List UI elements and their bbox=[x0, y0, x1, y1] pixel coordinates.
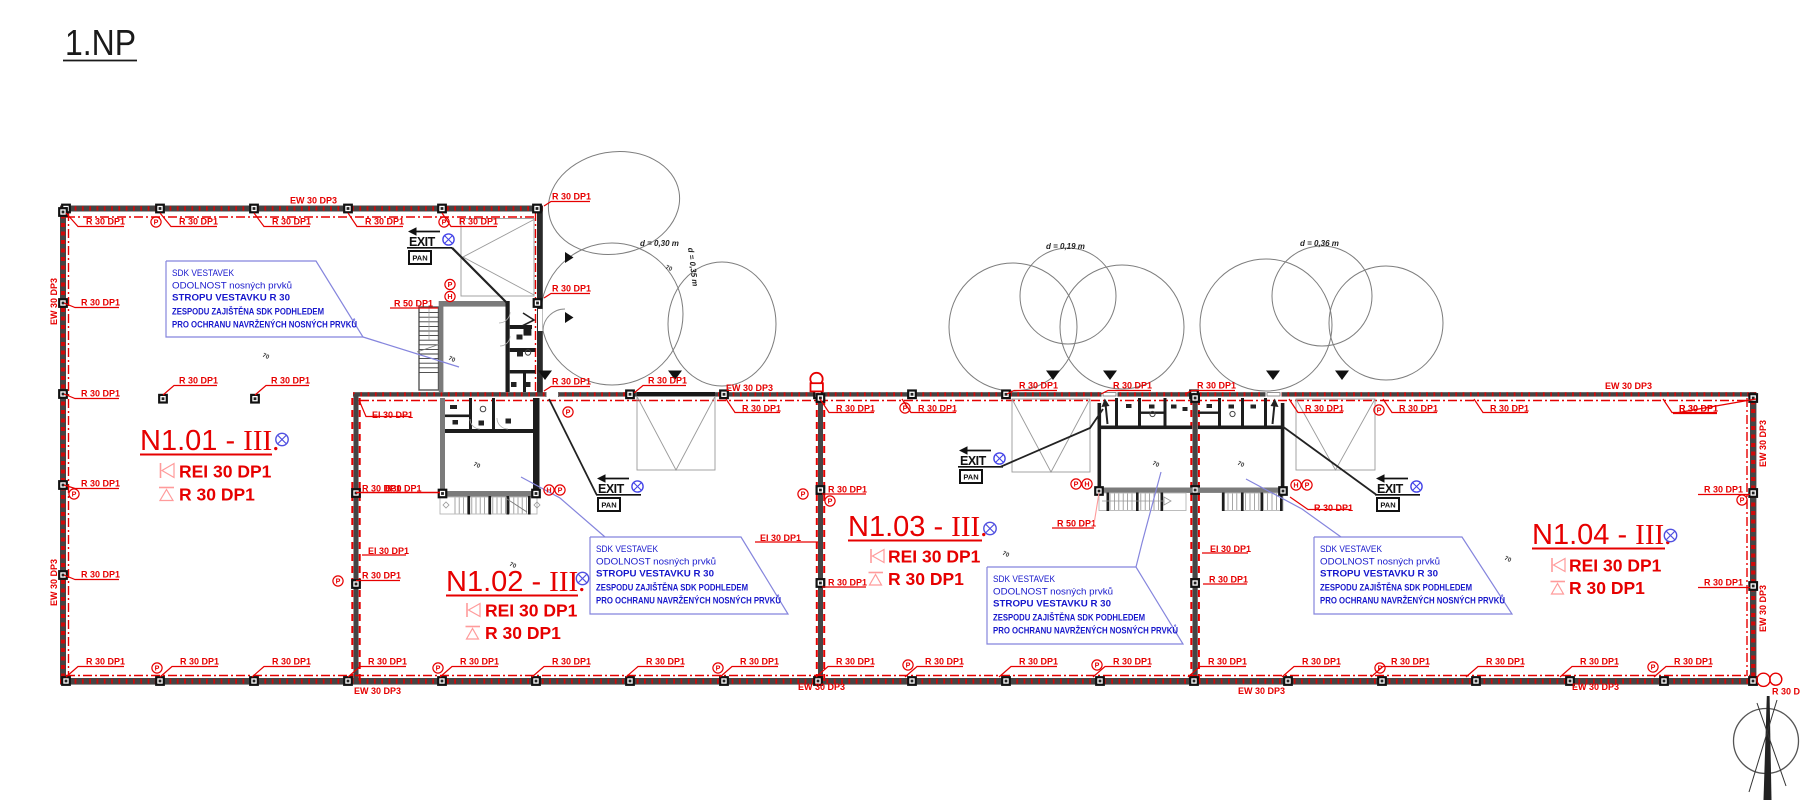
svg-text:1.NP: 1.NP bbox=[65, 22, 136, 63]
svg-text:R 30 DP1: R 30 DP1 bbox=[86, 217, 125, 227]
svg-text:R 30 DP1: R 30 DP1 bbox=[828, 578, 867, 588]
svg-text:REI 30 DP1: REI 30 DP1 bbox=[888, 547, 981, 567]
svg-text:N1.03 - III.: N1.03 - III. bbox=[848, 511, 987, 543]
svg-text:PRO OCHRANU NAVRŽENÝCH NOSNÝCH: PRO OCHRANU NAVRŽENÝCH NOSNÝCH PRVKŮ bbox=[1320, 595, 1505, 607]
svg-text:ZESPODU ZAJIŠTĚNA SDK PODHLEDE: ZESPODU ZAJIŠTĚNA SDK PODHLEDEM bbox=[993, 612, 1145, 624]
svg-text:EXIT: EXIT bbox=[598, 482, 625, 496]
svg-text:EW 30 DP3: EW 30 DP3 bbox=[1758, 420, 1768, 467]
svg-text:R 30 DP1: R 30 DP1 bbox=[1209, 575, 1248, 585]
svg-text:ODOLNOST nosných prvků: ODOLNOST nosných prvků bbox=[993, 587, 1113, 598]
svg-text:EI 30 DP1: EI 30 DP1 bbox=[372, 410, 413, 420]
svg-text:R 30 DP1: R 30 DP1 bbox=[86, 657, 125, 667]
svg-text:EW 30 DP3: EW 30 DP3 bbox=[290, 196, 337, 206]
svg-text:P: P bbox=[828, 497, 833, 506]
svg-text:EW 30 DP3: EW 30 DP3 bbox=[1572, 682, 1619, 692]
svg-text:REI 30 DP1: REI 30 DP1 bbox=[1569, 556, 1662, 576]
svg-text:STROPU VESTAVKU R 30: STROPU VESTAVKU R 30 bbox=[993, 599, 1111, 610]
svg-text:EXIT: EXIT bbox=[960, 454, 987, 468]
svg-text:P: P bbox=[906, 661, 911, 670]
svg-text:SDK VESTAVEK: SDK VESTAVEK bbox=[172, 268, 235, 279]
svg-text:EXIT: EXIT bbox=[409, 235, 436, 249]
svg-text:R 30 DP1: R 30 DP1 bbox=[1569, 578, 1645, 598]
svg-text:H: H bbox=[447, 292, 452, 301]
svg-text:PAN: PAN bbox=[412, 254, 427, 263]
svg-text:P: P bbox=[1095, 661, 1100, 670]
svg-text:d = 0,19 m: d = 0,19 m bbox=[1046, 242, 1085, 251]
svg-text:PAN: PAN bbox=[601, 501, 616, 510]
svg-text:R 30 DP1: R 30 DP1 bbox=[485, 623, 561, 643]
svg-text:ZESPODU ZAJIŠTĚNA SDK PODHLEDE: ZESPODU ZAJIŠTĚNA SDK PODHLEDEM bbox=[1320, 582, 1472, 594]
svg-text:R 30 DP1: R 30 DP1 bbox=[179, 217, 218, 227]
svg-text:R 30 DP1: R 30 DP1 bbox=[1113, 657, 1152, 667]
svg-text:R 30 DP1: R 30 DP1 bbox=[1674, 657, 1713, 667]
svg-text:R 30 DP1: R 30 DP1 bbox=[81, 479, 120, 489]
svg-text:ODOLNOST nosných prvků: ODOLNOST nosných prvků bbox=[172, 281, 292, 292]
svg-text:R 50 DP1: R 50 DP1 bbox=[394, 299, 433, 309]
svg-text:P: P bbox=[436, 664, 441, 673]
svg-text:P: P bbox=[903, 404, 908, 413]
svg-text:R 30 DP1: R 30 DP1 bbox=[740, 657, 779, 667]
svg-text:R 30 DP1: R 30 DP1 bbox=[368, 657, 407, 667]
svg-text:R 30 DP1: R 30 DP1 bbox=[460, 657, 499, 667]
svg-text:N1.01 - III.: N1.01 - III. bbox=[140, 425, 279, 457]
svg-text:R 30 DP1: R 30 DP1 bbox=[1580, 657, 1619, 667]
svg-text:ODOLNOST nosných prvků: ODOLNOST nosných prvků bbox=[596, 557, 716, 568]
svg-text:R 30 DP1: R 30 DP1 bbox=[179, 376, 218, 386]
svg-text:ZESPODU ZAJIŠTĚNA SDK PODHLEDE: ZESPODU ZAJIŠTĚNA SDK PODHLEDEM bbox=[596, 582, 748, 594]
svg-text:P: P bbox=[1378, 664, 1383, 673]
svg-text:PRO OCHRANU NAVRŽENÝCH NOSNÝCH: PRO OCHRANU NAVRŽENÝCH NOSNÝCH PRVKŮ bbox=[993, 625, 1178, 637]
svg-text:P: P bbox=[72, 490, 77, 499]
svg-text:R 30 DP1: R 30 DP1 bbox=[1302, 657, 1341, 667]
svg-text:R 30 DP1: R 30 DP1 bbox=[1486, 657, 1525, 667]
svg-text:P: P bbox=[558, 486, 563, 495]
svg-text:R 30 DP1: R 30 DP1 bbox=[271, 376, 310, 386]
svg-text:N1.02 - III.: N1.02 - III. bbox=[446, 566, 585, 598]
svg-text:R 30 DP1: R 30 DP1 bbox=[1019, 657, 1058, 667]
svg-text:R 30 DP1: R 30 DP1 bbox=[836, 657, 875, 667]
svg-text:P: P bbox=[1651, 663, 1656, 672]
svg-text:R 30 DP1: R 30 DP1 bbox=[1704, 578, 1743, 588]
svg-text:SDK VESTAVEK: SDK VESTAVEK bbox=[1320, 544, 1383, 555]
svg-text:STROPU VESTAVKU R 30: STROPU VESTAVKU R 30 bbox=[596, 569, 714, 580]
svg-text:R 30 DP1: R 30 DP1 bbox=[179, 485, 255, 505]
svg-text:P: P bbox=[336, 577, 341, 586]
svg-text:R 30 DP1: R 30 DP1 bbox=[1113, 381, 1152, 391]
svg-text:R 30 DP1: R 30 DP1 bbox=[925, 657, 964, 667]
svg-text:P: P bbox=[1305, 481, 1310, 490]
svg-text:R 30 DP1: R 30 DP1 bbox=[552, 192, 591, 202]
svg-text:ODOLNOST nosných prvků: ODOLNOST nosných prvků bbox=[1320, 557, 1440, 568]
svg-text:REI 30 DP1: REI 30 DP1 bbox=[179, 462, 272, 482]
svg-text:STROPU VESTAVKU R 30: STROPU VESTAVKU R 30 bbox=[1320, 569, 1438, 580]
svg-text:P: P bbox=[801, 490, 806, 499]
svg-text:B30 DP1: B30 DP1 bbox=[385, 484, 422, 494]
svg-text:STROPU VESTAVKU R 30: STROPU VESTAVKU R 30 bbox=[172, 293, 290, 304]
svg-text:P: P bbox=[442, 218, 447, 227]
svg-text:R 30 DP1: R 30 DP1 bbox=[272, 657, 311, 667]
svg-text:P: P bbox=[155, 664, 160, 673]
svg-text:R 30 DP1: R 30 DP1 bbox=[272, 217, 311, 227]
svg-text:PRO OCHRANU NAVRŽENÝCH NOSNÝCH: PRO OCHRANU NAVRŽENÝCH NOSNÝCH PRVKŮ bbox=[596, 595, 781, 607]
svg-text:H: H bbox=[1293, 481, 1298, 490]
svg-text:d = 0,30 m: d = 0,30 m bbox=[640, 239, 679, 248]
svg-text:EW 30 DP3: EW 30 DP3 bbox=[1238, 686, 1285, 696]
svg-text:R 30 DP1: R 30 DP1 bbox=[552, 377, 591, 387]
svg-text:R 30 DP1: R 30 DP1 bbox=[81, 570, 120, 580]
svg-text:R 30 DP1: R 30 DP1 bbox=[365, 217, 404, 227]
svg-text:R 30 DP1: R 30 DP1 bbox=[648, 376, 687, 386]
svg-text:ZESPODU ZAJIŠTĚNA SDK PODHLEDE: ZESPODU ZAJIŠTĚNA SDK PODHLEDEM bbox=[172, 306, 324, 318]
svg-text:EW 30 DP3: EW 30 DP3 bbox=[726, 383, 773, 393]
svg-text:R 30 DP1: R 30 DP1 bbox=[1772, 687, 1800, 697]
svg-text:R 30 DP1: R 30 DP1 bbox=[888, 569, 964, 589]
svg-text:P: P bbox=[1740, 496, 1745, 505]
svg-text:d = 0,36 m: d = 0,36 m bbox=[1300, 239, 1339, 248]
svg-text:R 30 DP1: R 30 DP1 bbox=[552, 657, 591, 667]
svg-text:PRO OCHRANU NAVRŽENÝCH NOSNÝCH: PRO OCHRANU NAVRŽENÝCH NOSNÝCH PRVKŮ bbox=[172, 319, 357, 331]
svg-text:EW 30 DP3: EW 30 DP3 bbox=[49, 278, 59, 325]
svg-text:EW 30 DP3: EW 30 DP3 bbox=[798, 682, 845, 692]
svg-text:R 30 DP1: R 30 DP1 bbox=[1704, 485, 1743, 495]
svg-text:EW 30 DP3: EW 30 DP3 bbox=[49, 559, 59, 606]
svg-text:R 30 DP1: R 30 DP1 bbox=[1391, 657, 1430, 667]
svg-text:R 50 DP1: R 50 DP1 bbox=[1057, 519, 1096, 529]
svg-text:R 30 DP1: R 30 DP1 bbox=[828, 485, 867, 495]
svg-text:EW 30 DP3: EW 30 DP3 bbox=[1758, 585, 1768, 632]
svg-text:N1.04 - III.: N1.04 - III. bbox=[1532, 519, 1671, 551]
svg-text:P: P bbox=[448, 280, 453, 289]
svg-text:R 30 DP1: R 30 DP1 bbox=[1019, 381, 1058, 391]
svg-text:H: H bbox=[1084, 480, 1089, 489]
svg-text:R 30 DP1: R 30 DP1 bbox=[646, 657, 685, 667]
svg-text:EW 30 DP3: EW 30 DP3 bbox=[1605, 381, 1652, 391]
svg-text:P: P bbox=[566, 408, 571, 417]
svg-text:EXIT: EXIT bbox=[1377, 482, 1404, 496]
svg-text:R 30 DP1: R 30 DP1 bbox=[81, 298, 120, 308]
svg-text:SDK VESTAVEK: SDK VESTAVEK bbox=[596, 544, 659, 555]
svg-text:P: P bbox=[1377, 406, 1382, 415]
svg-text:R 30 DP1: R 30 DP1 bbox=[362, 571, 401, 581]
svg-text:R 30 DP1: R 30 DP1 bbox=[552, 284, 591, 294]
svg-text:R 30 DP1: R 30 DP1 bbox=[180, 657, 219, 667]
svg-text:EW 30 DP3: EW 30 DP3 bbox=[354, 686, 401, 696]
svg-text:R 30 DP1: R 30 DP1 bbox=[459, 217, 498, 227]
svg-text:REI 30 DP1: REI 30 DP1 bbox=[485, 601, 578, 621]
svg-text:P: P bbox=[154, 218, 159, 227]
svg-text:R 30 DP1: R 30 DP1 bbox=[1197, 381, 1236, 391]
svg-text:R 30 DP1: R 30 DP1 bbox=[1208, 657, 1247, 667]
svg-text:PAN: PAN bbox=[1380, 501, 1395, 510]
svg-text:PAN: PAN bbox=[963, 473, 978, 482]
svg-text:R 30 DP1: R 30 DP1 bbox=[81, 389, 120, 399]
svg-text:R 30 DP1: R 30 DP1 bbox=[1314, 503, 1353, 513]
svg-text:P: P bbox=[716, 664, 721, 673]
svg-text:SDK VESTAVEK: SDK VESTAVEK bbox=[993, 574, 1056, 585]
svg-text:H: H bbox=[546, 486, 551, 495]
svg-text:P: P bbox=[1074, 480, 1079, 489]
